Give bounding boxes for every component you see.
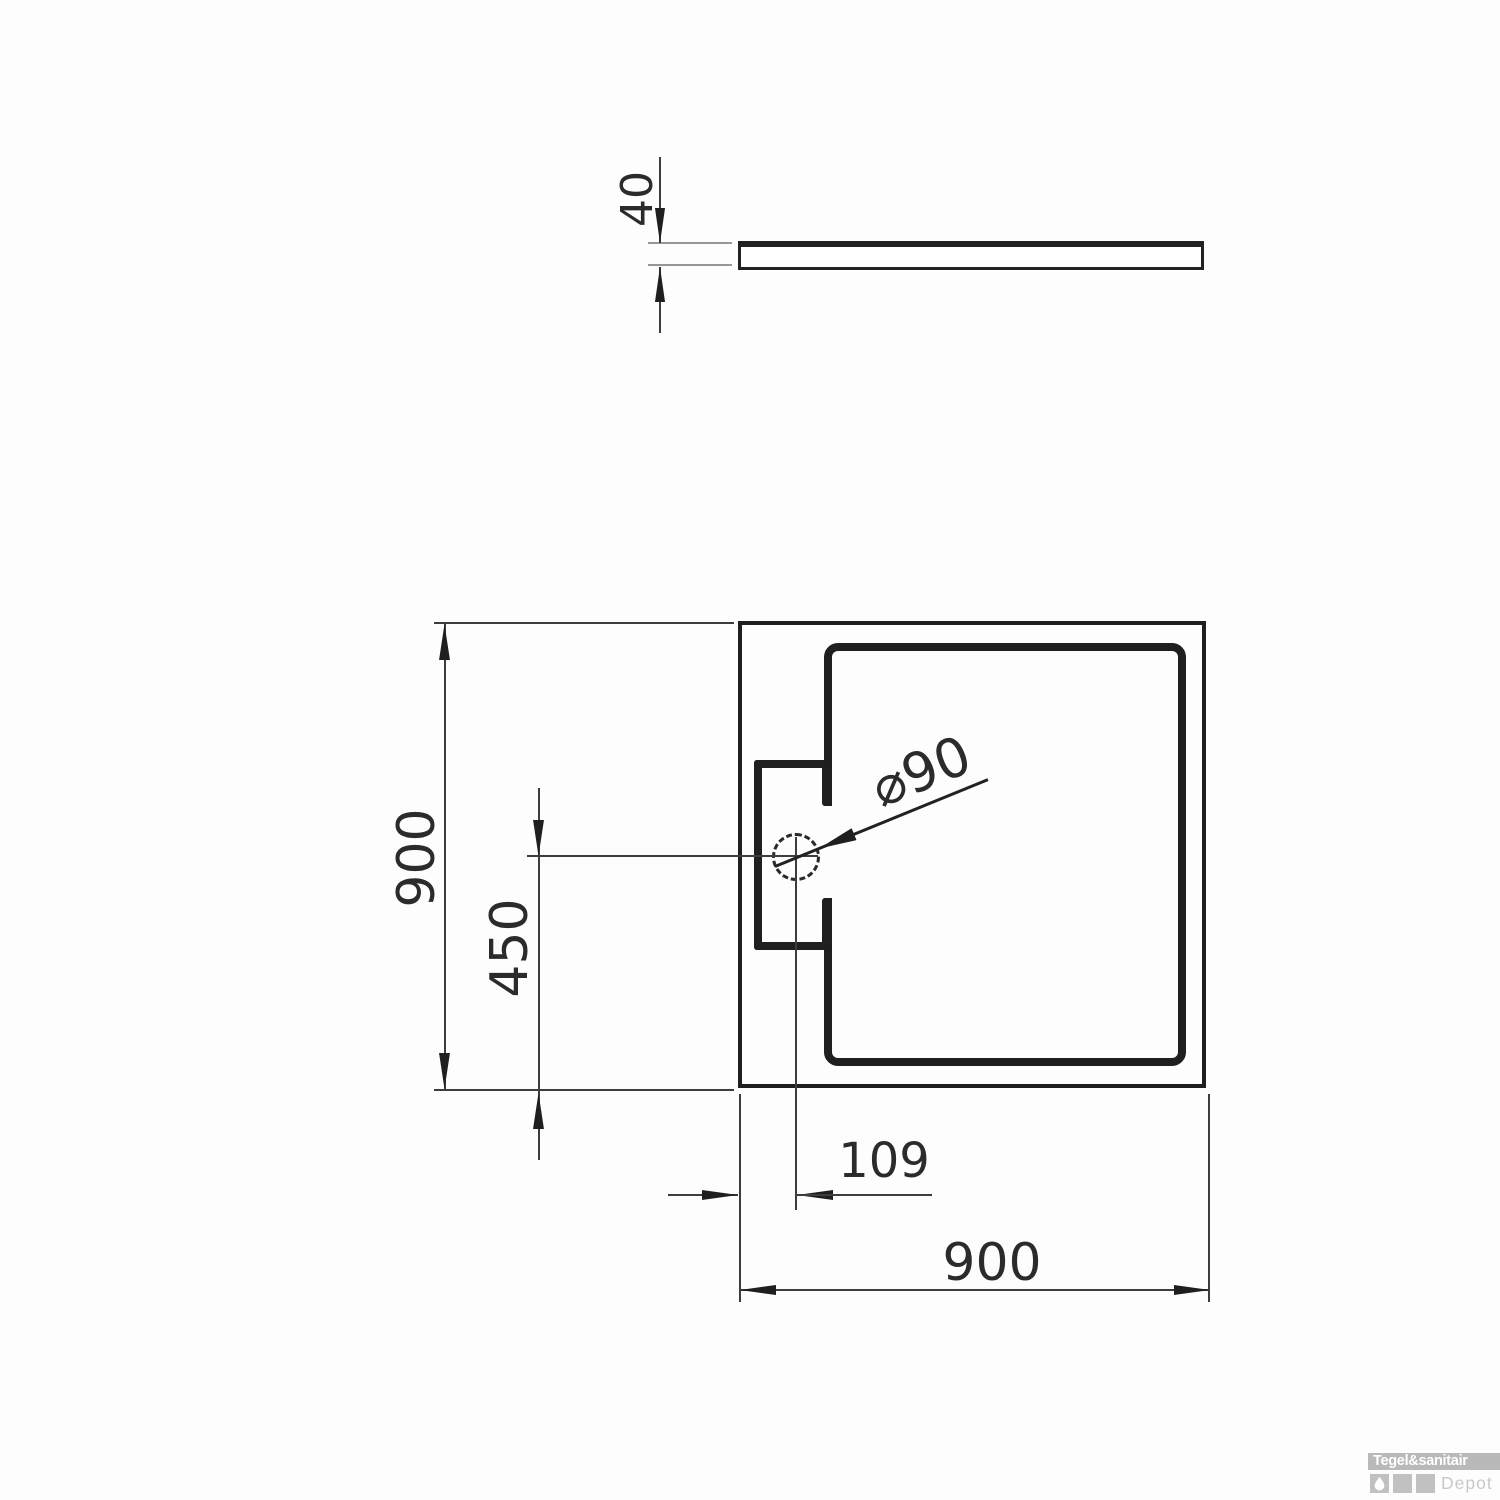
drain-centerline-horizontal xyxy=(527,855,818,857)
logo-square-droplet xyxy=(1370,1474,1389,1493)
dim-900-left-label: 900 xyxy=(391,803,443,913)
dim-450-arrow-down-icon xyxy=(532,820,545,856)
dim-extension-square-left xyxy=(739,1094,741,1302)
dim-40-label: 40 xyxy=(615,169,659,229)
dim-900-left-extension-bottom xyxy=(434,1089,734,1091)
logo-brand-bar: Tegel&sanitair xyxy=(1368,1453,1500,1470)
drain-pocket-upper-stub xyxy=(822,760,830,806)
side-view-extension-tick-bottom xyxy=(648,264,732,266)
drain-pocket-bottom-edge xyxy=(754,942,830,950)
tray-inner-basin xyxy=(824,643,1186,1066)
dim-900-bottom-label: 900 xyxy=(922,1237,1062,1289)
drain-pocket-top-edge xyxy=(754,760,830,768)
dim-450-label: 450 xyxy=(484,893,536,1003)
dim-900-bottom-arrow-right-icon xyxy=(1174,1284,1210,1296)
dim-109-arrow-right-icon xyxy=(702,1189,738,1201)
dim-900-left-arrow-up-icon xyxy=(438,624,451,660)
dim-900-left-extension-top xyxy=(434,622,734,624)
dim-900-left-arrow-down-icon xyxy=(438,1053,451,1089)
logo-square-3 xyxy=(1416,1474,1435,1493)
drain-centerline-vertical xyxy=(795,837,797,1210)
side-view-plate xyxy=(738,241,1204,270)
logo-square-2 xyxy=(1393,1474,1412,1493)
dim-109-tail-right xyxy=(797,1194,932,1196)
logo-depot-text: Depot xyxy=(1441,1473,1499,1493)
dim-40-arrow-up-icon xyxy=(654,267,666,302)
basin-border-gap xyxy=(823,806,834,898)
dim-extension-square-right xyxy=(1208,1094,1210,1302)
drain-pocket-lower-stub xyxy=(822,898,830,950)
dim-450-arrow-up-icon xyxy=(532,1093,545,1129)
droplet-icon xyxy=(1374,1477,1385,1491)
dim-900-bottom-arrow-left-icon xyxy=(740,1284,776,1296)
dim-109-label: 109 xyxy=(824,1136,944,1186)
